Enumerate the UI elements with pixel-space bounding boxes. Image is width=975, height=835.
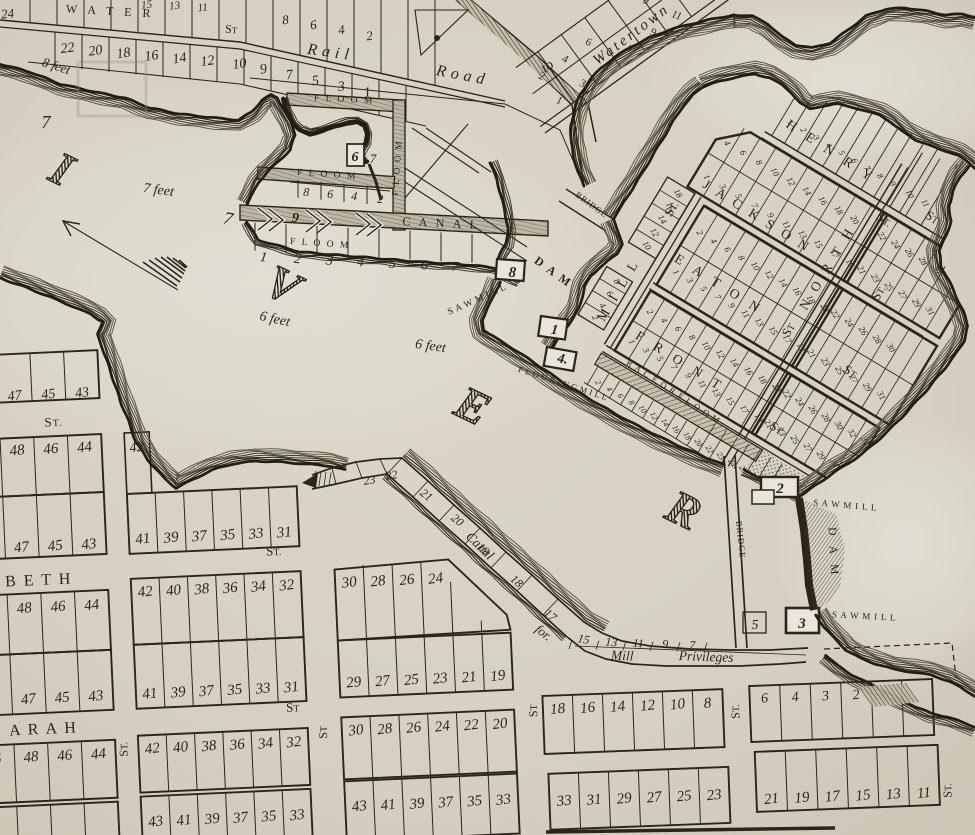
svg-text:43: 43 xyxy=(147,813,164,831)
svg-text:23: 23 xyxy=(432,670,449,688)
svg-text:16: 16 xyxy=(579,699,596,717)
svg-text:43: 43 xyxy=(87,688,104,706)
svg-text:7: 7 xyxy=(42,112,52,132)
svg-text:22: 22 xyxy=(385,467,399,483)
svg-text:38: 38 xyxy=(200,738,218,756)
svg-text:4: 4 xyxy=(351,189,358,203)
svg-text:33: 33 xyxy=(555,792,573,810)
svg-text:21: 21 xyxy=(763,791,780,809)
svg-text:15: 15 xyxy=(855,787,872,805)
svg-text:38: 38 xyxy=(192,581,210,599)
svg-text:12: 12 xyxy=(639,697,656,715)
svg-text:43: 43 xyxy=(81,536,98,554)
svg-text:30: 30 xyxy=(347,722,365,740)
svg-text:19: 19 xyxy=(794,789,811,807)
svg-text:44: 44 xyxy=(83,597,100,615)
svg-text:9: 9 xyxy=(662,637,669,651)
svg-text:29: 29 xyxy=(345,674,362,692)
svg-text:3: 3 xyxy=(820,689,830,705)
svg-text:3: 3 xyxy=(797,616,806,632)
svg-text:48: 48 xyxy=(16,600,33,618)
svg-text:10: 10 xyxy=(232,56,248,73)
svg-text:11: 11 xyxy=(632,636,644,651)
svg-text:11: 11 xyxy=(916,785,932,802)
svg-text:39: 39 xyxy=(169,684,187,702)
svg-text:20: 20 xyxy=(492,715,509,733)
svg-text:22: 22 xyxy=(463,717,480,735)
svg-text:44: 44 xyxy=(90,746,107,764)
svg-text:46: 46 xyxy=(56,747,73,765)
svg-text:23: 23 xyxy=(363,472,377,488)
svg-text:39: 39 xyxy=(203,811,221,829)
svg-text:33: 33 xyxy=(494,791,512,809)
svg-text:41: 41 xyxy=(142,685,159,703)
svg-text:ST: ST xyxy=(316,726,331,739)
svg-text:45: 45 xyxy=(47,537,64,555)
svg-text:26: 26 xyxy=(405,719,422,737)
svg-text:31: 31 xyxy=(282,679,300,697)
svg-text:13: 13 xyxy=(169,0,182,13)
svg-text:40: 40 xyxy=(172,739,189,757)
svg-text:36: 36 xyxy=(221,579,239,597)
svg-text:39: 39 xyxy=(162,529,180,547)
svg-text:14: 14 xyxy=(609,698,626,716)
svg-text:6: 6 xyxy=(327,187,334,201)
svg-text:9: 9 xyxy=(291,211,299,227)
svg-text:25: 25 xyxy=(403,671,420,689)
svg-text:14: 14 xyxy=(172,51,188,68)
svg-text:33: 33 xyxy=(247,525,265,543)
svg-text:24: 24 xyxy=(434,718,451,736)
svg-text:18: 18 xyxy=(116,46,132,63)
svg-text:46: 46 xyxy=(50,598,67,616)
svg-text:33: 33 xyxy=(288,807,306,825)
svg-text:B E T H: B E T H xyxy=(5,571,73,591)
svg-text:35: 35 xyxy=(218,527,236,545)
svg-text:26: 26 xyxy=(399,571,416,589)
svg-text:48: 48 xyxy=(9,442,26,460)
svg-text:22: 22 xyxy=(60,40,76,57)
svg-text:A R A H: A R A H xyxy=(9,719,78,739)
svg-text:13: 13 xyxy=(885,786,902,804)
svg-text:35: 35 xyxy=(225,681,243,699)
svg-text:28: 28 xyxy=(376,721,393,739)
svg-text:20: 20 xyxy=(88,43,104,60)
svg-text:8: 8 xyxy=(303,185,310,199)
svg-text:5: 5 xyxy=(752,618,759,633)
svg-text:25: 25 xyxy=(676,788,693,806)
svg-text:19: 19 xyxy=(489,667,506,685)
svg-text:7: 7 xyxy=(370,151,377,166)
svg-text:31: 31 xyxy=(275,524,293,542)
svg-text:45: 45 xyxy=(54,689,71,707)
svg-text:45: 45 xyxy=(41,387,57,404)
svg-text:Mill: Mill xyxy=(610,647,634,663)
svg-text:35: 35 xyxy=(465,793,483,811)
svg-text:41: 41 xyxy=(380,797,397,815)
svg-text:46: 46 xyxy=(43,440,60,458)
svg-text:28: 28 xyxy=(370,573,387,591)
svg-text:31: 31 xyxy=(585,791,603,809)
svg-text:24: 24 xyxy=(427,570,444,588)
svg-text:2: 2 xyxy=(377,192,384,206)
svg-text:29: 29 xyxy=(616,790,633,808)
svg-text:42: 42 xyxy=(144,740,161,758)
svg-text:21: 21 xyxy=(461,669,478,687)
svg-text:34: 34 xyxy=(256,735,274,753)
svg-text:39: 39 xyxy=(408,795,426,813)
svg-text:43: 43 xyxy=(351,798,368,816)
svg-text:11: 11 xyxy=(197,2,208,15)
svg-text:35: 35 xyxy=(260,808,278,826)
svg-text:6: 6 xyxy=(352,150,359,165)
svg-text:24: 24 xyxy=(0,5,15,21)
svg-text:32: 32 xyxy=(277,577,295,595)
svg-text:41: 41 xyxy=(176,812,193,830)
svg-text:43: 43 xyxy=(74,385,90,402)
svg-text:34: 34 xyxy=(249,578,267,596)
svg-text:33: 33 xyxy=(254,680,272,698)
svg-text:48: 48 xyxy=(23,749,40,767)
svg-text:ST: ST xyxy=(526,704,541,717)
svg-text:44: 44 xyxy=(76,439,93,457)
svg-text:41: 41 xyxy=(135,530,152,548)
svg-text:42: 42 xyxy=(137,583,154,601)
svg-text:23: 23 xyxy=(706,787,723,805)
svg-text:40: 40 xyxy=(165,582,182,600)
svg-text:12: 12 xyxy=(200,53,216,70)
svg-text:15: 15 xyxy=(577,631,591,647)
svg-text:18: 18 xyxy=(549,701,566,719)
svg-text:2: 2 xyxy=(775,481,784,497)
svg-text:36: 36 xyxy=(228,736,246,754)
svg-text:Privileges: Privileges xyxy=(678,648,734,665)
svg-text:10: 10 xyxy=(669,696,686,714)
svg-text:47: 47 xyxy=(7,388,24,405)
svg-text:32: 32 xyxy=(284,734,302,752)
svg-text:30: 30 xyxy=(340,574,358,592)
